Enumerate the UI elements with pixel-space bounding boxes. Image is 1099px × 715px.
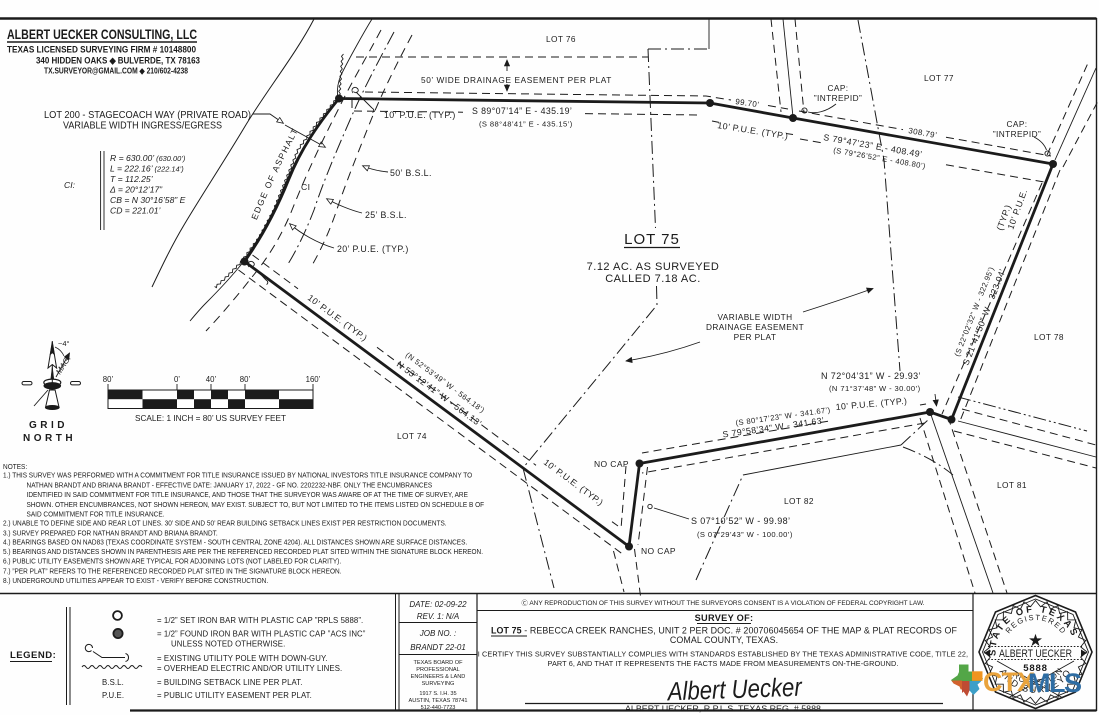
svg-text:ALBERT UECKER CONSULTING, LLC: ALBERT UECKER CONSULTING, LLC — [7, 27, 197, 42]
svg-text:20’ P.U.E. (TYP.): 20’ P.U.E. (TYP.) — [337, 244, 409, 254]
svg-text:ALBERT UECKER: ALBERT UECKER — [999, 648, 1072, 660]
svg-text:VARIABLE WIDTH: VARIABLE WIDTH — [717, 312, 792, 322]
svg-text:0’: 0’ — [174, 375, 180, 384]
svg-text:ENGINEERS & LAND: ENGINEERS & LAND — [411, 674, 466, 680]
svg-text:340 HIDDEN OAKS ◆ BULVERDE, TX: 340 HIDDEN OAKS ◆ BULVERDE, TX 78163 — [36, 56, 200, 66]
svg-text:SCALE: 1 INCH = 80’ US SURV: SCALE: 1 INCH = 80’ US SURVEY FEET — [135, 414, 286, 423]
svg-text:(N 71°37’48” W - 30.00’): (N 71°37’48” W - 30.00’) — [829, 384, 921, 393]
svg-text:Albert Uecker: Albert Uecker — [666, 672, 804, 707]
svg-text:(S 88°48’41” E - 435.15’): (S 88°48’41” E - 435.15’) — [479, 120, 573, 129]
svg-text:5.) BEARINGS AND DISTANCES SHO: 5.) BEARINGS AND DISTANCES SHOWN IN PARE… — [3, 549, 483, 556]
svg-text:NO CAP: NO CAP — [594, 459, 629, 469]
svg-text:50’ B.S.L.: 50’ B.S.L. — [390, 168, 432, 178]
svg-text:1917 S. I.H. 35: 1917 S. I.H. 35 — [419, 691, 456, 697]
svg-text:= OVERHEAD ELECTRIC AND/OR UTI: = OVERHEAD ELECTRIC AND/OR UTILITY LINES… — [157, 664, 342, 673]
svg-text:512-440-7723: 512-440-7723 — [421, 705, 456, 711]
svg-text:1.) THIS SURVEY WAS PERFORMED: 1.) THIS SURVEY WAS PERFORMED WITH A COM… — [3, 472, 472, 479]
svg-text:ALBERT UECKER, R.P.L.S. TEX: ALBERT UECKER, R.P.L.S. TEXAS REG. # 588… — [625, 705, 821, 714]
svg-text:80’: 80’ — [103, 375, 114, 384]
svg-text:Ⓒ ANY REPRODUCTION OF THIS SU: Ⓒ ANY REPRODUCTION OF THIS SURVEY WITHOU… — [521, 599, 924, 607]
svg-text:MAG.: MAG. — [54, 354, 73, 376]
svg-text:LOT 74: LOT 74 — [397, 431, 427, 441]
svg-text:CAP:: CAP: — [1007, 119, 1028, 129]
svg-text:8.) UNDERGROUND UTILITIES APPE: 8.) UNDERGROUND UTILITIES APPEAR TO EXIS… — [3, 578, 268, 585]
svg-text:SURVEY OF:: SURVEY OF: — [695, 613, 754, 623]
svg-text:R = 630.00’ (630.00’): R = 630.00’ (630.00’) — [110, 153, 186, 163]
svg-text:AUSTIN, TEXAS 78741: AUSTIN, TEXAS 78741 — [409, 698, 468, 704]
svg-text:NO CAP: NO CAP — [641, 546, 676, 556]
svg-text:CB = N 30°16’58” E: CB = N 30°16’58” E — [110, 195, 186, 205]
svg-text:LOT 82: LOT 82 — [784, 496, 814, 506]
svg-text:IDENTIFIED IN SAID COMMITMENT: IDENTIFIED IN SAID COMMITMENT FOR TITLE … — [27, 492, 469, 499]
svg-text:4.) BEARINGS BASED ON NAD83 (T: 4.) BEARINGS BASED ON NAD83 (TEXAS COORD… — [3, 540, 467, 547]
svg-text:N 72°04’31” W - 29.93’: N 72°04’31” W - 29.93’ — [821, 371, 921, 381]
svg-text:= 1/2” FOUND IRON BAR WITH PLA: = 1/2” FOUND IRON BAR WITH PLASTIC CAP ”… — [157, 630, 366, 639]
svg-text:10’ P.U.E. (TYP.): 10’ P.U.E. (TYP.) — [384, 110, 456, 120]
svg-text:NATHAN BRANDT AND BRIANA BRAND: NATHAN BRANDT AND BRIANA BRANDT - EFFECT… — [27, 482, 433, 489]
svg-text:TEXAS BOARD OF: TEXAS BOARD OF — [413, 660, 463, 666]
svg-text:CI: CI — [301, 182, 310, 192]
svg-text:25’ B.S.L.: 25’ B.S.L. — [365, 210, 407, 220]
svg-text:CI:: CI: — [64, 180, 76, 190]
svg-text:MLS: MLS — [1028, 668, 1081, 698]
svg-text:LOT 81: LOT 81 — [997, 480, 1027, 490]
svg-text:SURVEYING: SURVEYING — [422, 681, 455, 687]
svg-text:S 89°07’14” E - 435.19’: S 89°07’14” E - 435.19’ — [472, 106, 572, 116]
svg-text:DATE: 02-09-22: DATE: 02-09-22 — [409, 600, 467, 609]
svg-text:P.U.E.: P.U.E. — [102, 691, 124, 700]
svg-text:TEXAS LICENSED SURVEYING FIRM: TEXAS LICENSED SURVEYING FIRM # 10148800 — [7, 45, 196, 55]
svg-text:7.12 AC. AS SURVEYED: 7.12 AC. AS SURVEYED — [587, 261, 720, 273]
svg-text:L = 222.16’ (222.14’): L = 222.16’ (222.14’) — [110, 164, 184, 174]
svg-text:LEGEND:: LEGEND: — [10, 650, 56, 661]
svg-text:Δ = 20°12’17”: Δ = 20°12’17” — [109, 185, 163, 195]
svg-text:UNLESS NOTED OTHERWISE.: UNLESS NOTED OTHERWISE. — [171, 640, 285, 649]
svg-text:LOT 78: LOT 78 — [1034, 332, 1064, 342]
svg-text:NORTH: NORTH — [23, 433, 76, 444]
svg-text:6.) PUBLIC UTILITY EASEMENTS S: 6.) PUBLIC UTILITY EASEMENTS SHOWN ARE T… — [3, 558, 341, 565]
svg-text:PART 6, AND THAT IT REPRESENTS: PART 6, AND THAT IT REPRESENTS THE FACTS… — [548, 659, 899, 668]
svg-text:50’ WIDE DRAINAGE EASEMENT PER: 50’ WIDE DRAINAGE EASEMENT PER PLAT — [421, 75, 612, 85]
svg-text:I CERTIFY THIS SURVEY SUBSTANT: I CERTIFY THIS SURVEY SUBSTANTIALLY COMP… — [478, 650, 968, 659]
svg-text:10’ P.U.E. (TYP.): 10’ P.U.E. (TYP.) — [717, 120, 789, 141]
svg-text:CAP:: CAP: — [828, 83, 849, 93]
svg-text:PROFESSIONAL: PROFESSIONAL — [416, 667, 460, 673]
svg-text:TX.SURVEYOR@GMAIL.COM ◆ 210/60: TX.SURVEYOR@GMAIL.COM ◆ 210/602-4238 — [44, 67, 188, 76]
svg-text:10’ P.U.E. (TYP.): 10’ P.U.E. (TYP.) — [835, 396, 907, 412]
svg-text:”INTREPID”: ”INTREPID” — [814, 93, 862, 103]
svg-text:GRID: GRID — [29, 420, 68, 431]
svg-text:CD = 221.01’: CD = 221.01’ — [110, 206, 161, 216]
svg-text:PER PLAT: PER PLAT — [734, 332, 777, 342]
svg-text:2.) UNABLE TO DEFINE SIDE AND: 2.) UNABLE TO DEFINE SIDE AND REAR LOT L… — [3, 520, 447, 527]
svg-text:”INTREPID”: ”INTREPID” — [993, 129, 1041, 139]
svg-text:S 07°10’52” W - 99.98’: S 07°10’52” W - 99.98’ — [691, 516, 790, 526]
svg-text:LOT 75: LOT 75 — [624, 231, 680, 248]
svg-text:CALLED 7.18 AC.: CALLED 7.18 AC. — [605, 273, 701, 285]
svg-text:3.) SURVEY PREPARED FOR NATHAN: 3.) SURVEY PREPARED FOR NATHAN BRANDT AN… — [3, 530, 218, 537]
svg-text:B.S.L.: B.S.L. — [102, 678, 124, 687]
svg-text:NOTES:: NOTES: — [3, 464, 27, 471]
svg-text:VARIABLE WIDTH INGRESS/EGRESS: VARIABLE WIDTH INGRESS/EGRESS — [63, 120, 222, 132]
svg-text:LOT 76: LOT 76 — [546, 34, 576, 44]
svg-text:10’ P.U.E. (TYP.): 10’ P.U.E. (TYP.) — [306, 293, 370, 344]
svg-text:= 1/2” SET IRON BAR WITH PLAST: = 1/2” SET IRON BAR WITH PLASTIC CAP ”RP… — [157, 616, 363, 625]
svg-text:(S 07°29’43” W - 100.00’): (S 07°29’43” W - 100.00’) — [697, 530, 793, 539]
svg-text:SHOWN. OTHER ENCUMBRANCES, NOT: SHOWN. OTHER ENCUMBRANCES, NOT SHOWN HER… — [27, 502, 485, 509]
svg-text:SAID COMMITMENT FOR TITLE INSU: SAID COMMITMENT FOR TITLE INSURANCE. — [27, 511, 165, 518]
svg-text:= EXISTING UTILITY POLE WITH D: = EXISTING UTILITY POLE WITH DOWN-GUY. — [157, 654, 328, 663]
svg-text:REV. 1: N/A: REV. 1: N/A — [417, 612, 460, 621]
svg-text:JOB NO. :: JOB NO. : — [419, 629, 456, 638]
svg-text:80’: 80’ — [240, 375, 251, 384]
svg-text:= PUBLIC UTILITY EASEMENT PER: = PUBLIC UTILITY EASEMENT PER PLAT. — [157, 691, 312, 700]
svg-text:= BUILDING SETBACK LINE PER PL: = BUILDING SETBACK LINE PER PLAT. — [157, 678, 303, 687]
svg-text:COMAL COUNTY, TEXAS.: COMAL COUNTY, TEXAS. — [670, 635, 778, 645]
svg-text:LOT 77: LOT 77 — [924, 73, 954, 83]
svg-text:~4°: ~4° — [58, 339, 70, 348]
svg-text:40’: 40’ — [206, 375, 217, 384]
svg-text:T = 112.25’: T = 112.25’ — [110, 174, 154, 184]
svg-text:BRANDT 22-01: BRANDT 22-01 — [410, 643, 466, 652]
svg-text:LOT 75 - REBECCA CREEK RANCHES: LOT 75 - REBECCA CREEK RANCHES, UNIT 2 P… — [491, 626, 957, 636]
svg-text:160’: 160’ — [306, 375, 321, 384]
svg-text:DRAINAGE EASEMENT: DRAINAGE EASEMENT — [706, 322, 804, 332]
svg-text:7.) ”PER PLAT” REFERS TO THE R: 7.) ”PER PLAT” REFERS TO THE REFERENCED … — [3, 568, 342, 575]
